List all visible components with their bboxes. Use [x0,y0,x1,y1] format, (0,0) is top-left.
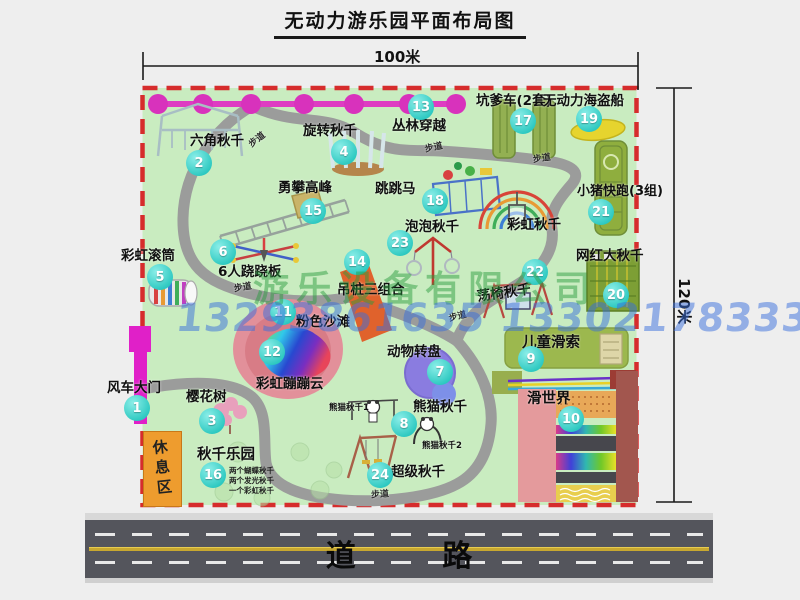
item-14-badge: 14 [344,249,370,275]
panda-swing-2-label: 熊猫秋千2 [422,442,462,451]
item-9-badge: 9 [518,346,544,372]
item-8-label: 熊猫秋千 [413,400,467,415]
item-11-badge: 11 [270,299,296,325]
swing-park-sub-3: 一个彩虹秋千 [229,486,274,496]
item-7-badge: 7 [427,359,453,385]
item-4-label: 旋转秋千 [303,124,357,139]
item-19-badge: 19 [576,106,602,132]
item-1-label: 风车大门 [107,381,161,396]
item-16-badge: 16 [200,462,226,488]
item-5-badge: 5 [147,264,173,290]
item-23-badge: 23 [387,230,413,256]
item-16-label: 秋千乐园 [197,448,255,464]
item-21-label: 小猪快跑(3组) [577,185,663,199]
item-12-badge: 12 [259,339,285,365]
item-13-label: 丛林穿越 [392,119,446,134]
item-22-badge: 22 [522,259,548,285]
road: 道 路 [85,520,713,578]
item-4-badge: 4 [331,139,357,165]
rainbow-swing-label: 彩虹秋千 [507,218,561,233]
item-11-label: 粉色沙滩 [296,315,350,330]
road-shoulder-bottom [85,578,713,583]
height-dimension-label: 120米 [674,278,695,324]
playground-layout-map: 无动力游乐园平面布局图 100米 120米 休息区 风车大门 六角秋千 樱花树 … [0,0,800,600]
page-title: 无动力游乐园平面布局图 [274,6,525,39]
item-20-label: 网红大秋千 [576,249,644,264]
title-bar: 无动力游乐园平面布局图 [0,6,800,39]
item-13-badge: 13 [408,94,434,120]
swing-park-sub-2: 两个发光秋千 [229,476,274,486]
item-18-label: 跳跳马 [375,182,416,197]
item-18-badge: 18 [422,188,448,214]
item-24-label: 超级秋千 [391,465,445,480]
item-23-label: 泡泡秋千 [405,220,459,235]
item-15-label: 勇攀高峰 [278,181,332,196]
item-10-label: 滑世界 [527,392,571,408]
swing-park-sub-1: 两个蝴蝶秋千 [229,466,274,476]
panda-swing-1-label: 熊猫秋千1 [329,404,369,413]
item-17-badge: 17 [510,108,536,134]
item-1-badge: 1 [124,395,150,421]
item-6-label: 6人跷跷板 [218,265,281,280]
item-12-label: 彩虹蹦蹦云 [256,377,324,392]
rest-area-label: 休息区 [149,438,176,500]
item-15-badge: 15 [300,198,326,224]
swing-park-sublist: 两个蝴蝶秋千 两个发光秋千 一个彩虹秋千 [229,466,274,496]
item-3-badge: 3 [199,408,225,434]
item-7-label: 动物转盘 [387,345,441,360]
item-5-label: 彩虹滚筒 [121,249,175,264]
item-6-badge: 6 [210,239,236,265]
road-shoulder-top [85,513,713,520]
item-10-badge: 10 [558,406,584,432]
item-17-label: 坑爹车(2套) [476,94,552,109]
item-2-label: 六角秋千 [190,134,244,149]
item-8-badge: 8 [391,411,417,437]
item-20-badge: 20 [603,282,629,308]
footpath-label: 步道 [371,490,390,501]
item-24-badge: 24 [367,462,393,488]
rest-area: 休息区 [143,431,182,507]
width-dimension-label: 100米 [374,46,420,67]
item-2-badge: 2 [186,150,212,176]
item-3-label: 樱花树 [186,390,227,405]
item-21-badge: 21 [588,199,614,225]
road-label: 道 路 [85,531,713,575]
item-14-label: 吊桩三组合 [337,283,405,298]
